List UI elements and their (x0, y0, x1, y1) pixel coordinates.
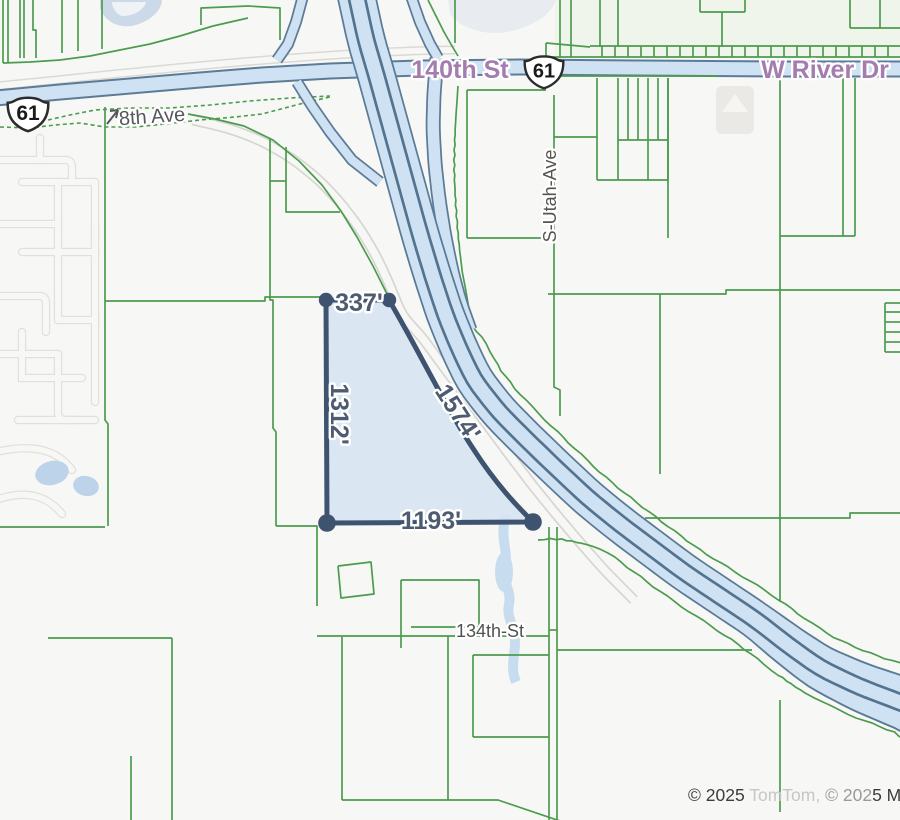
svg-text:W River Dr: W River Dr (761, 56, 889, 84)
svg-text:S-Utah-Ave: S-Utah-Ave (540, 150, 560, 243)
svg-text:© 2025 TomTom, © 2025 M: © 2025 TomTom, © 2025 M (688, 785, 900, 805)
svg-text:61: 61 (16, 102, 40, 125)
svg-text:1193': 1193' (401, 507, 461, 535)
svg-text:140th St: 140th St (411, 56, 509, 84)
svg-text:337': 337' (335, 289, 383, 317)
svg-text:1312': 1312' (325, 383, 353, 445)
svg-text:61: 61 (533, 61, 555, 83)
svg-text:8th Ave: 8th Ave (118, 104, 186, 131)
svg-text:134th-St: 134th-St (456, 621, 524, 641)
